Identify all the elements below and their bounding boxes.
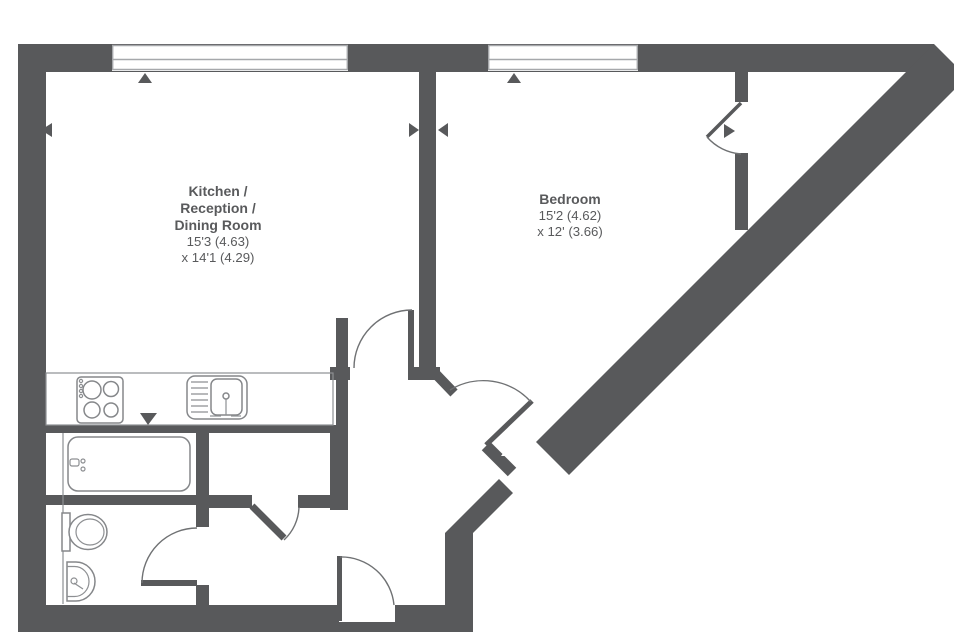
kitchen-dimensions: x 14'1 (4.29) [182,250,255,265]
kitchen-door-swing [354,310,412,368]
hob [77,377,123,423]
bathroom-door-swing [142,528,197,583]
bedroom-window-opening [488,45,638,71]
bathtub [68,437,190,491]
kitchen-label: Kitchen / Reception / Dining Room 15'3 (… [174,183,261,265]
floorplan-page: Kitchen / Reception / Dining Room 15'3 (… [0,0,954,639]
kitchen-window-opening [112,45,348,71]
closet-door-swing [707,137,741,154]
kitchen-window [112,45,348,71]
bathroom-door-leaf [141,580,197,586]
kitchen-door [354,310,414,368]
front-door-opening [339,605,395,622]
diagonal-wall-upper [536,44,954,475]
wash-basin [67,562,95,601]
floorplan-canvas: Kitchen / Reception / Dining Room 15'3 (… [0,0,954,639]
bedroom-window [488,45,638,71]
bathroom-door [141,528,197,586]
bathroom-east-wall-upper [196,433,209,527]
entry-door-leaf [486,401,532,445]
marker-right-divider [409,123,419,137]
room-labels: Kitchen / Reception / Dining Room 15'3 (… [174,183,602,265]
hob-burner [104,403,118,417]
storage-cupboard-door [252,506,299,540]
bottom-wall [18,605,473,632]
bedroom-dimensions: x 12' (3.66) [537,224,603,239]
kitchen-door-leaf [408,310,414,368]
hob-burner [84,402,100,418]
bedroom-closet-wall-lower [735,153,748,230]
toilet-bowl [69,515,107,550]
bathtub-body [68,437,190,491]
marker-left-divider [438,123,448,137]
bathroom-mid-wall [46,495,197,505]
marker-right-closet-door [724,124,735,138]
front-door-leaf [337,556,342,621]
cupboard-south-wall-east [298,495,348,508]
kitchen-name-line: Dining Room [174,217,261,233]
cupboard-door-swing [284,507,299,540]
entry-door-notch [501,441,523,456]
kitchen-name-line: Reception / [180,200,256,216]
front-door [337,556,395,622]
sink [187,376,247,419]
left-wall [18,44,46,632]
hall-wall-stub-upper [336,318,348,425]
bedroom-entry-door [429,367,532,472]
bedroom-label: Bedroom 15'2 (4.62) x 12' (3.66) [537,191,603,239]
bedroom-dimensions: 15'2 (4.62) [539,208,602,223]
bedroom-closet-wall-upper [735,72,748,102]
kitchen-name-line: Kitchen / [188,183,247,199]
cupboard-south-wall-west [209,495,252,508]
sink-tap-head [223,393,229,399]
bathroom-east-wall-lower [196,585,209,605]
diagonal-wall-lower [445,479,513,632]
bedroom-name: Bedroom [539,191,600,207]
toilet [62,513,107,551]
front-door-swing [340,557,394,605]
marker-up-kitchen-window [138,73,152,83]
marker-up-bedroom-window [507,73,521,83]
cupboard-door-leaf [252,506,284,538]
fixtures [46,373,333,604]
entry-door-swing [450,381,531,402]
hob-burner [104,382,119,397]
marker-down-counter [140,413,157,425]
hob-burner [83,381,101,399]
kitchen-south-wall [46,425,348,433]
divider-wall [419,72,436,368]
kitchen-dimensions: 15'3 (4.63) [187,234,250,249]
